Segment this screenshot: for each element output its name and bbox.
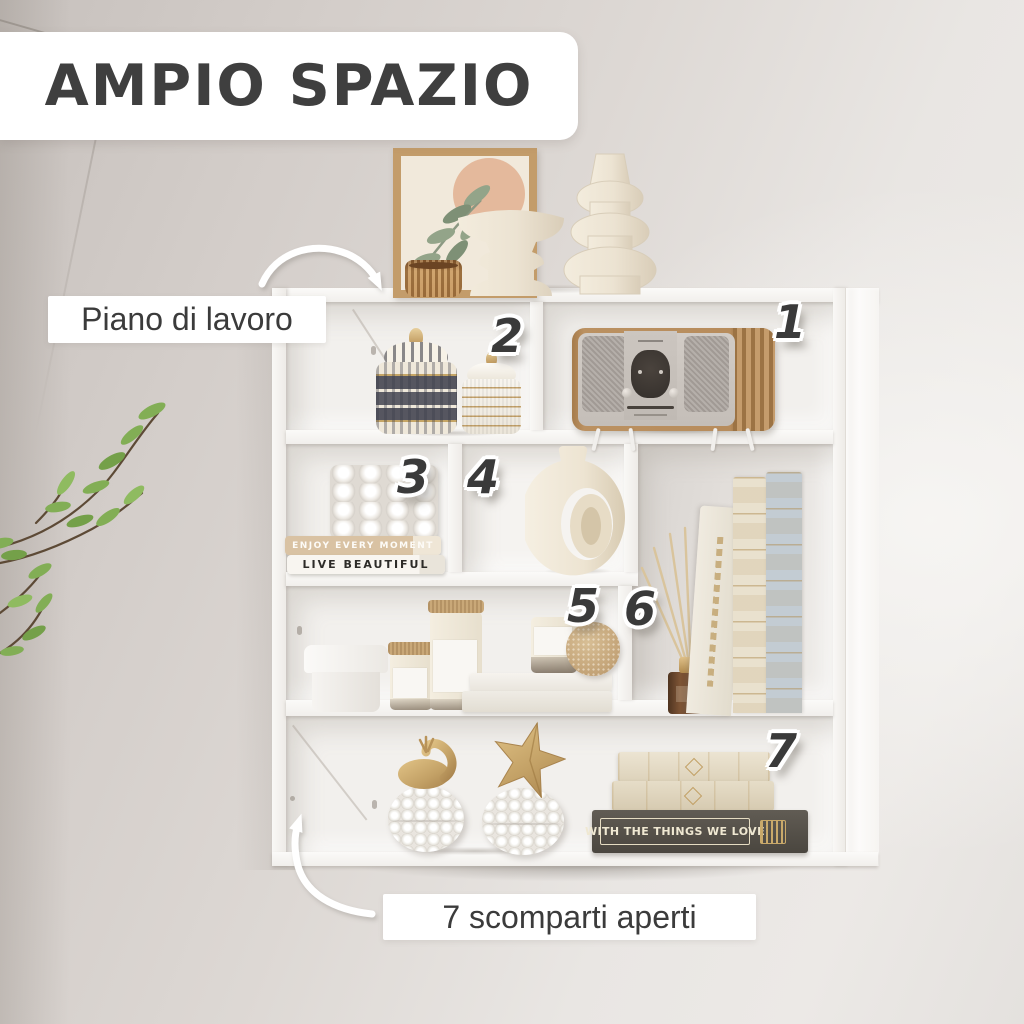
pedestal-bowl-vase — [452, 200, 570, 296]
radio-knob-right — [669, 388, 679, 398]
callout-work-surface: Piano di lavoro — [48, 296, 326, 343]
white-canister — [304, 645, 388, 673]
gold-diamond-ornament — [685, 758, 703, 776]
book-spine-text: LIVE BEAUTIFUL — [302, 558, 429, 571]
gold-star-figurine — [490, 718, 566, 798]
bumpy-jar-star — [482, 788, 564, 855]
product-photo-scene: ENJOY EVERY MOMENT LIVE BEAUTIFUL — [0, 0, 1024, 1024]
retro-radio-speaker — [572, 328, 775, 431]
donut-vases — [525, 444, 637, 576]
book-live-beautiful: LIVE BEAUTIFUL — [287, 555, 445, 574]
divider-row1 — [530, 302, 543, 430]
ornate-book-blue — [766, 472, 802, 713]
jar-body — [462, 379, 521, 434]
book-enjoy-every-moment: ENJOY EVERY MOMENT — [285, 536, 441, 555]
temple-emblem-icon — [760, 820, 786, 844]
shelf-right-side-face — [845, 288, 879, 866]
screw-hole — [290, 796, 295, 801]
sculptural-vase — [560, 150, 660, 296]
radio-speaker-left — [582, 336, 627, 412]
amber-votive-holder — [405, 260, 462, 297]
candle-base — [390, 699, 432, 710]
white-canister-base — [312, 672, 380, 712]
cork-lid — [388, 642, 434, 655]
keyhole-mount-2 — [297, 626, 302, 635]
radio-display-dot — [659, 370, 663, 374]
candle-label — [393, 668, 427, 698]
radio-display-dot — [638, 370, 642, 374]
radio-cd-slot — [627, 406, 674, 409]
divider-row2-left — [448, 444, 462, 572]
dark-book-label: WITH THE THINGS WE LOVE — [600, 818, 750, 845]
radio-display — [631, 350, 670, 398]
callout-compartments: 7 scomparti aperti — [383, 894, 756, 940]
book-spine-text: ENJOY EVERY MOMENT — [292, 541, 434, 551]
horizontal-ornate-book-2 — [612, 781, 774, 811]
badge-4: 4 — [467, 450, 499, 504]
bumpy-jar-swan — [388, 786, 464, 852]
curved-arrow-top-icon — [248, 238, 394, 298]
plant-branch — [0, 395, 175, 725]
gold-striped-jar — [462, 352, 521, 434]
dark-book-spine-text: WITH THE THINGS WE LOVE — [585, 825, 765, 838]
gold-diamond-ornament — [684, 787, 702, 805]
jar-body — [376, 362, 457, 434]
jar-lid — [467, 363, 516, 380]
ornate-book-cream — [733, 477, 766, 713]
badge-6: 6 — [624, 582, 656, 636]
candle-jar-medium — [390, 654, 432, 710]
shelf-left-panel — [272, 288, 286, 866]
radio-wood-side — [733, 328, 775, 431]
gold-swan-figurine — [396, 726, 462, 790]
jar-lid — [384, 342, 448, 364]
callout-top-text: Piano di lavoro — [81, 301, 293, 338]
badge-7: 7 — [765, 724, 797, 778]
radio-speaker-right — [684, 336, 729, 412]
radio-model-text — [634, 414, 667, 416]
shelf-right-inner-panel — [833, 288, 845, 866]
callout-bottom-text: 7 scomparti aperti — [442, 899, 696, 936]
radio-knob-left — [622, 388, 632, 398]
horizontal-ornate-book-1 — [618, 752, 770, 782]
dark-book: WITH THE THINGS WE LOVE — [592, 810, 808, 853]
badge-1: 1 — [774, 295, 806, 349]
white-book-stack-bottom — [462, 691, 612, 712]
headline-text: AMPIO SPAZIO — [45, 53, 534, 119]
headline-banner: AMPIO SPAZIO — [0, 32, 578, 140]
curved-arrow-bottom-icon — [272, 808, 384, 926]
patterned-ginger-jar — [376, 328, 457, 434]
badge-5: 5 — [567, 579, 599, 633]
badge-3: 3 — [397, 450, 429, 504]
radio-brand-text — [638, 340, 663, 342]
cork-lid — [428, 600, 484, 613]
badge-2: 2 — [491, 309, 523, 363]
